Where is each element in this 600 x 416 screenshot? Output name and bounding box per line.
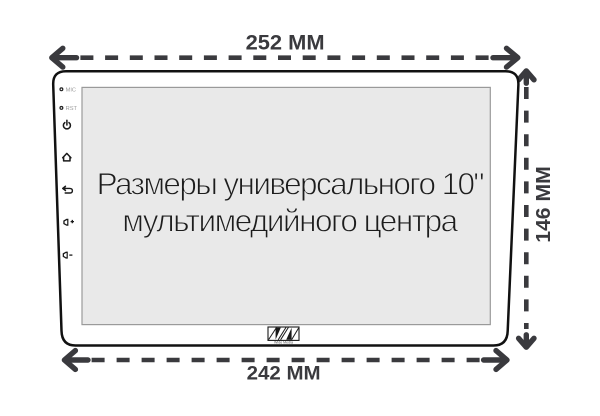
svg-text:Wide Media: Wide Media (274, 341, 293, 345)
svg-text:мультимедийного центра: мультимедийного центра (122, 203, 458, 239)
svg-text:252 ММ: 252 ММ (246, 30, 325, 54)
svg-text:RST: RST (66, 106, 78, 112)
svg-text:146 ММ: 146 ММ (533, 166, 555, 243)
svg-text:242 ММ: 242 ММ (247, 364, 321, 385)
svg-text:Размеры универсального 10": Размеры универсального 10" (97, 165, 485, 201)
svg-text:MIC: MIC (66, 87, 76, 93)
